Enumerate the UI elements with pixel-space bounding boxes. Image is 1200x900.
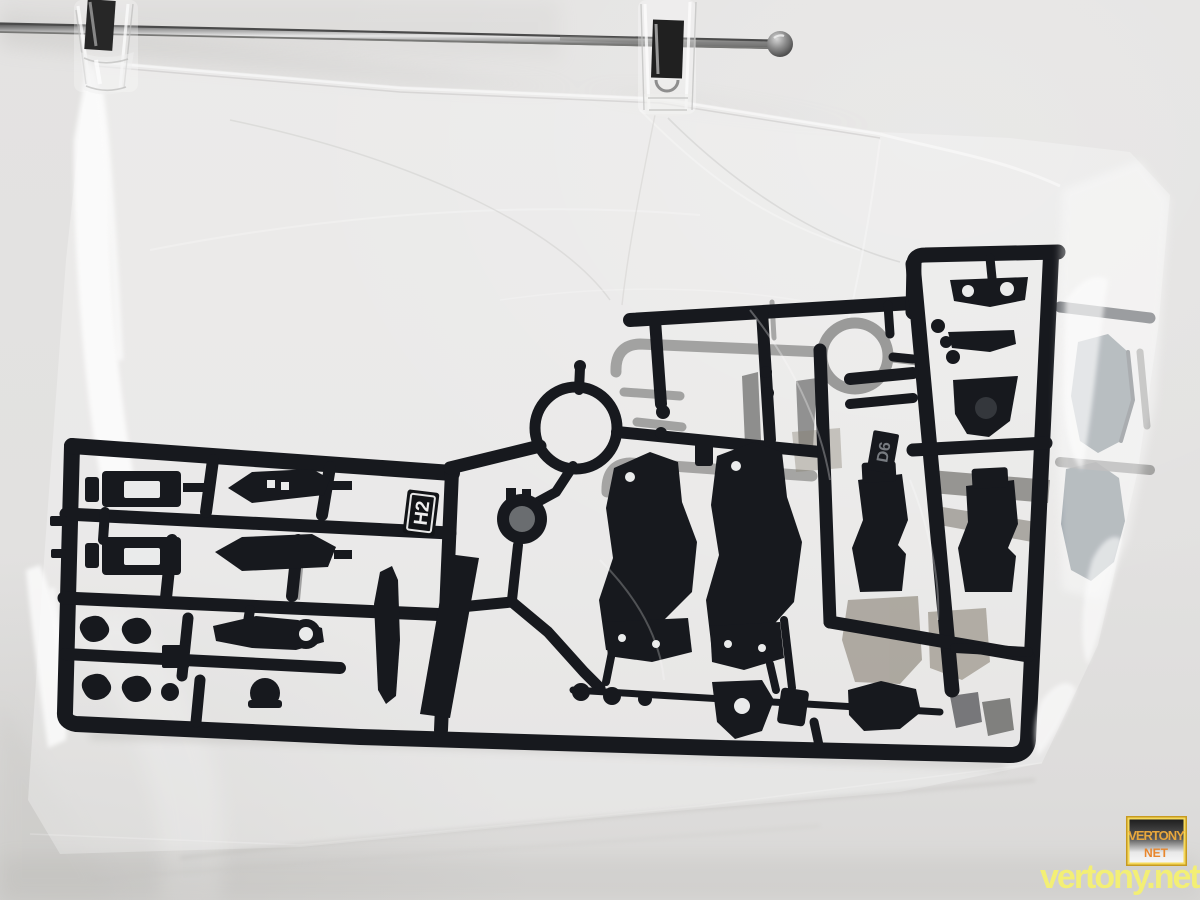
svg-text:vertony.net: vertony.net (1040, 858, 1200, 896)
svg-text:VERTONY: VERTONY (1128, 828, 1185, 843)
